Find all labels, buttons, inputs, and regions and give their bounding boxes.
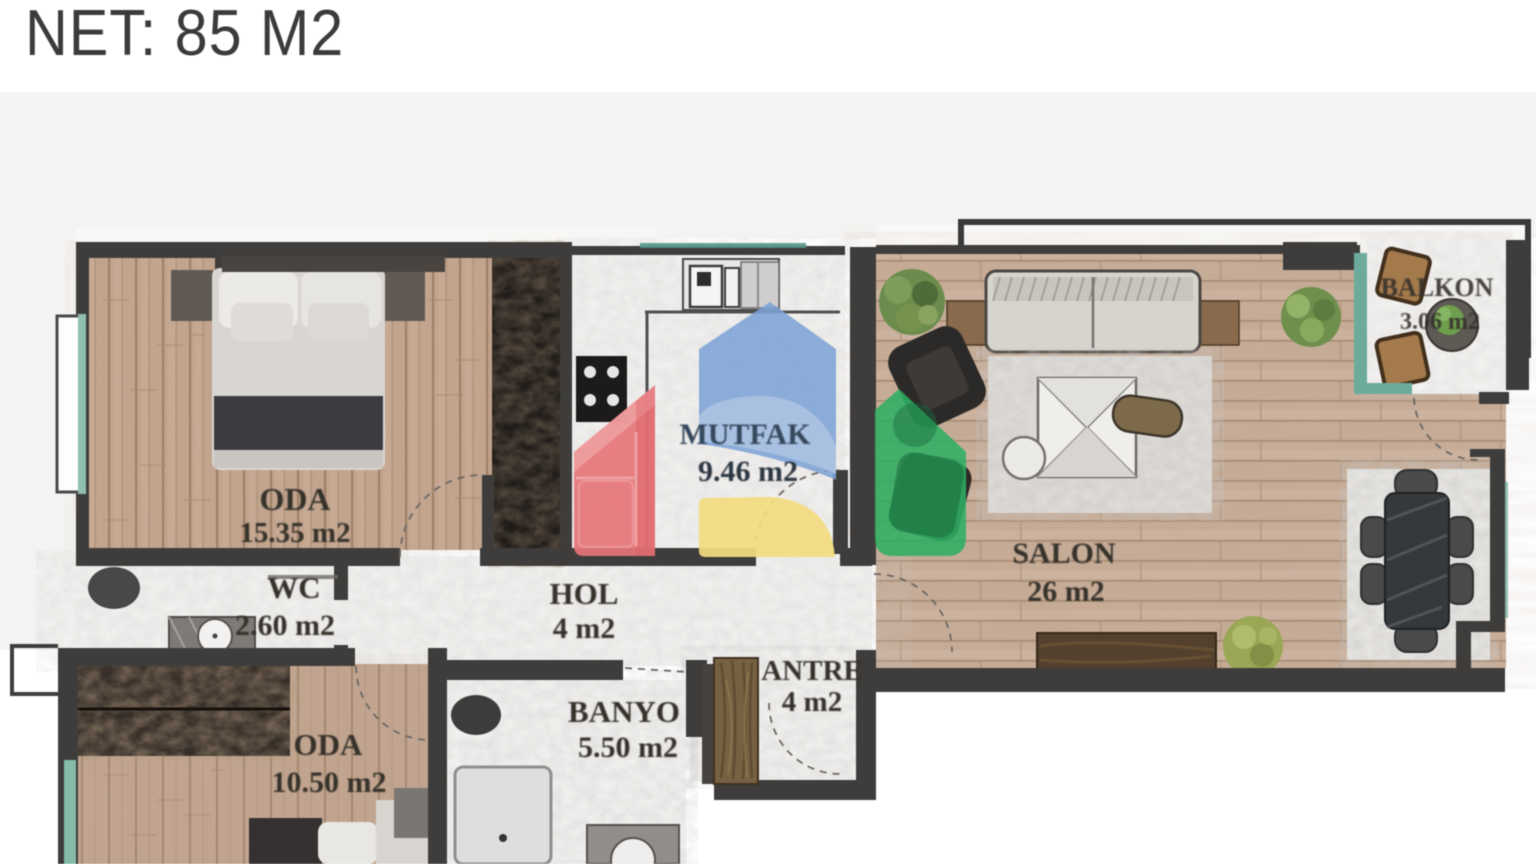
svg-text:15.35 m2: 15.35 m2 xyxy=(239,517,350,549)
svg-text:3.06 m2: 3.06 m2 xyxy=(1400,309,1480,335)
svg-text:ODA: ODA xyxy=(294,727,364,762)
svg-text:ANTRE: ANTRE xyxy=(761,655,863,687)
svg-text:MUTFAK: MUTFAK xyxy=(679,418,811,451)
svg-text:ODA: ODA xyxy=(259,481,330,517)
svg-text:BANYO: BANYO xyxy=(568,694,680,729)
svg-text:4 m2: 4 m2 xyxy=(782,686,842,718)
svg-text:BALKON: BALKON xyxy=(1381,273,1494,302)
svg-text:10.50 m2: 10.50 m2 xyxy=(272,766,387,799)
svg-text:9.46 m2: 9.46 m2 xyxy=(698,455,798,488)
svg-text:NET: 85 M2: NET: 85 M2 xyxy=(25,0,344,70)
svg-text:5.50 m2: 5.50 m2 xyxy=(578,731,678,764)
svg-text:26 m2: 26 m2 xyxy=(1027,575,1105,608)
svg-text:2.60 m2: 2.60 m2 xyxy=(235,609,335,642)
svg-text:SALON: SALON xyxy=(1012,537,1116,570)
svg-text:4 m2: 4 m2 xyxy=(553,612,616,645)
svg-text:WC: WC xyxy=(267,570,320,605)
svg-text:HOL: HOL xyxy=(550,576,619,611)
